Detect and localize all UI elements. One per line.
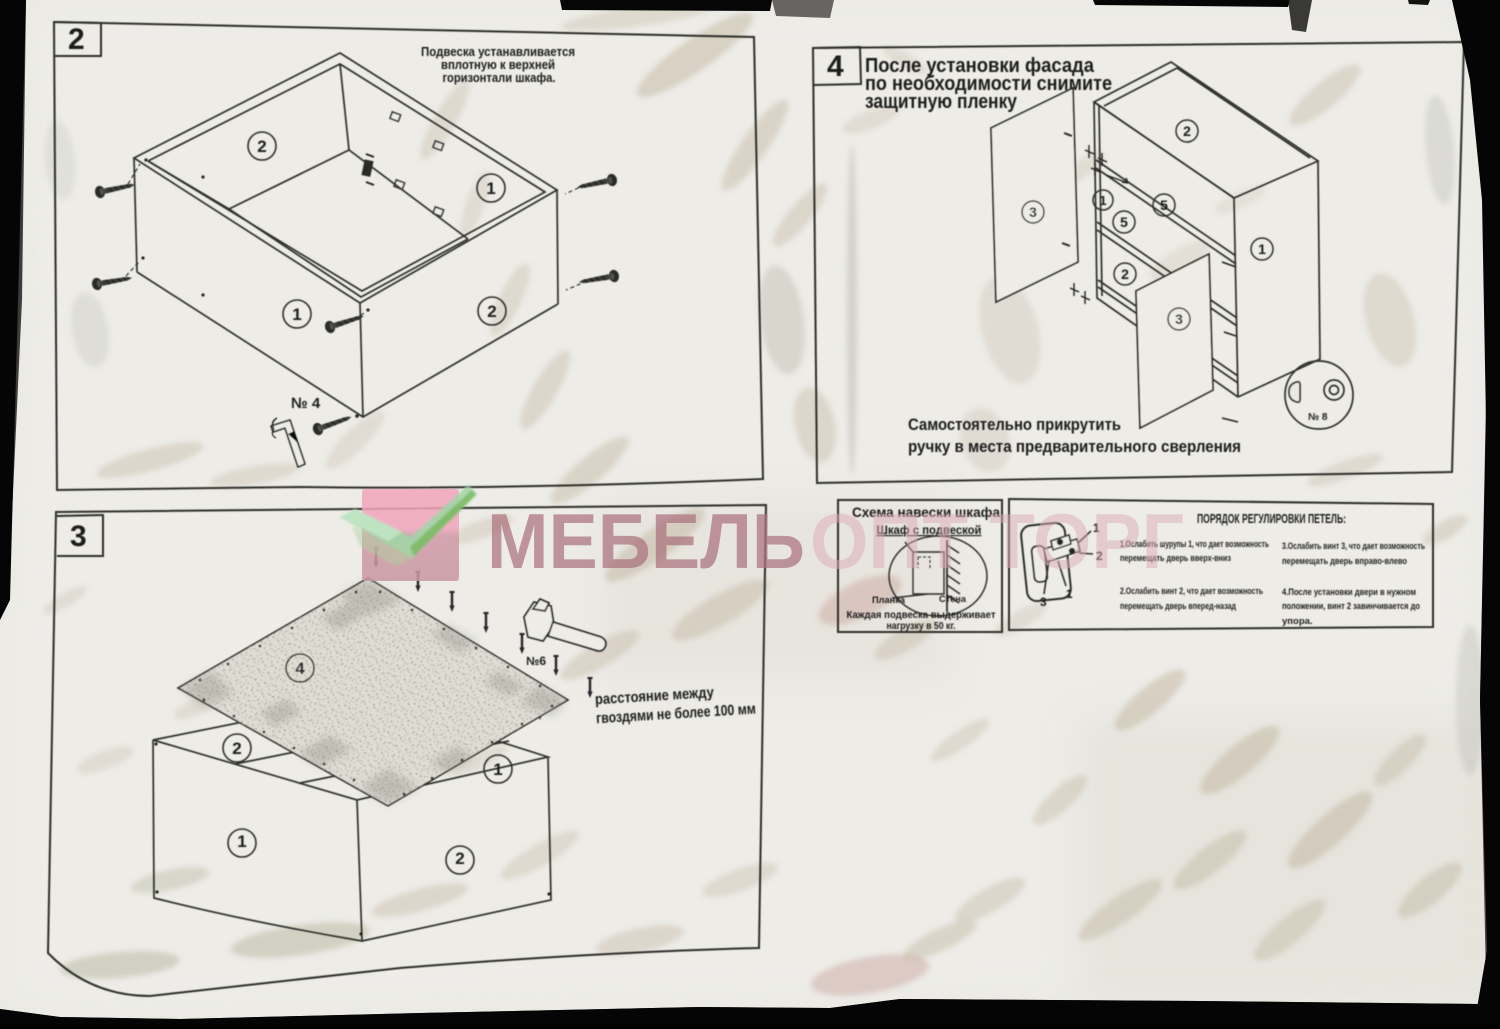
svg-text:Самостоятельно прикрутить: Самостоятельно прикрутить (908, 415, 1121, 434)
svg-text:нагрузку в 50 кг.: нагрузку в 50 кг. (887, 620, 956, 632)
svg-text:Стена: Стена (939, 594, 967, 605)
svg-text:перемещать дверь вправо-влево: перемещать дверь вправо-влево (1282, 556, 1407, 567)
svg-text:4: 4 (827, 50, 844, 83)
svg-text:ПОРЯДОК РЕГУЛИРОВКИ ПЕТЕЛЬ:: ПОРЯДОК РЕГУЛИРОВКИ ПЕТЕЛЬ: (1197, 511, 1346, 526)
svg-text:горизонтали шкафа.: горизонтали шкафа. (443, 70, 556, 85)
svg-text:1: 1 (292, 305, 301, 324)
svg-text:ОПТ ТОРГ: ОПТ ТОРГ (810, 497, 1184, 585)
svg-text:2: 2 (257, 137, 266, 156)
svg-text:2: 2 (1121, 266, 1129, 282)
svg-text:защитную пленку: защитную пленку (865, 91, 1018, 113)
svg-text:2: 2 (487, 302, 496, 321)
svg-text:1: 1 (1258, 241, 1266, 257)
svg-text:1: 1 (1066, 587, 1073, 601)
svg-text:перемещать дверь вперед-назад: перемещать дверь вперед-назад (1120, 601, 1236, 612)
svg-text:№ 8: № 8 (1308, 412, 1328, 423)
svg-text:2: 2 (232, 739, 241, 758)
svg-text:3: 3 (70, 520, 87, 553)
svg-text:1: 1 (493, 760, 502, 779)
svg-text:МЕБЕЛЬ: МЕБЕЛЬ (487, 497, 805, 585)
svg-text:5: 5 (1160, 197, 1168, 213)
svg-text:4: 4 (295, 659, 305, 678)
svg-text:1: 1 (1099, 193, 1106, 208)
svg-text:1: 1 (237, 832, 246, 851)
svg-text:3: 3 (1040, 595, 1047, 609)
svg-text:упора.: упора. (1282, 616, 1313, 627)
svg-text:№6: №6 (526, 654, 546, 668)
svg-text:3.Ослабить винт 3, что дает во: 3.Ослабить винт 3, что дает возможность (1282, 541, 1425, 552)
svg-text:ручку в места предварительного: ручку в места предварительного сверления (908, 437, 1241, 456)
svg-text:2: 2 (1183, 123, 1191, 139)
svg-text:5: 5 (1120, 214, 1128, 230)
svg-text:2: 2 (455, 849, 464, 868)
svg-text:положении, винт 2 завинчивает: положении, винт 2 завинчивается до (1282, 601, 1420, 612)
svg-text:2: 2 (68, 23, 85, 56)
svg-text:3: 3 (1175, 311, 1183, 327)
svg-text:4.После установки двери в нужн: 4.После установки двери в нужном (1282, 587, 1416, 598)
svg-text:№ 4: № 4 (291, 395, 321, 412)
svg-text:2.Ослабить винт 2, что дает во: 2.Ослабить винт 2, что дает возможность (1120, 586, 1263, 597)
svg-text:1: 1 (486, 179, 495, 198)
svg-text:Планка: Планка (872, 595, 906, 606)
svg-text:3: 3 (1029, 204, 1037, 220)
